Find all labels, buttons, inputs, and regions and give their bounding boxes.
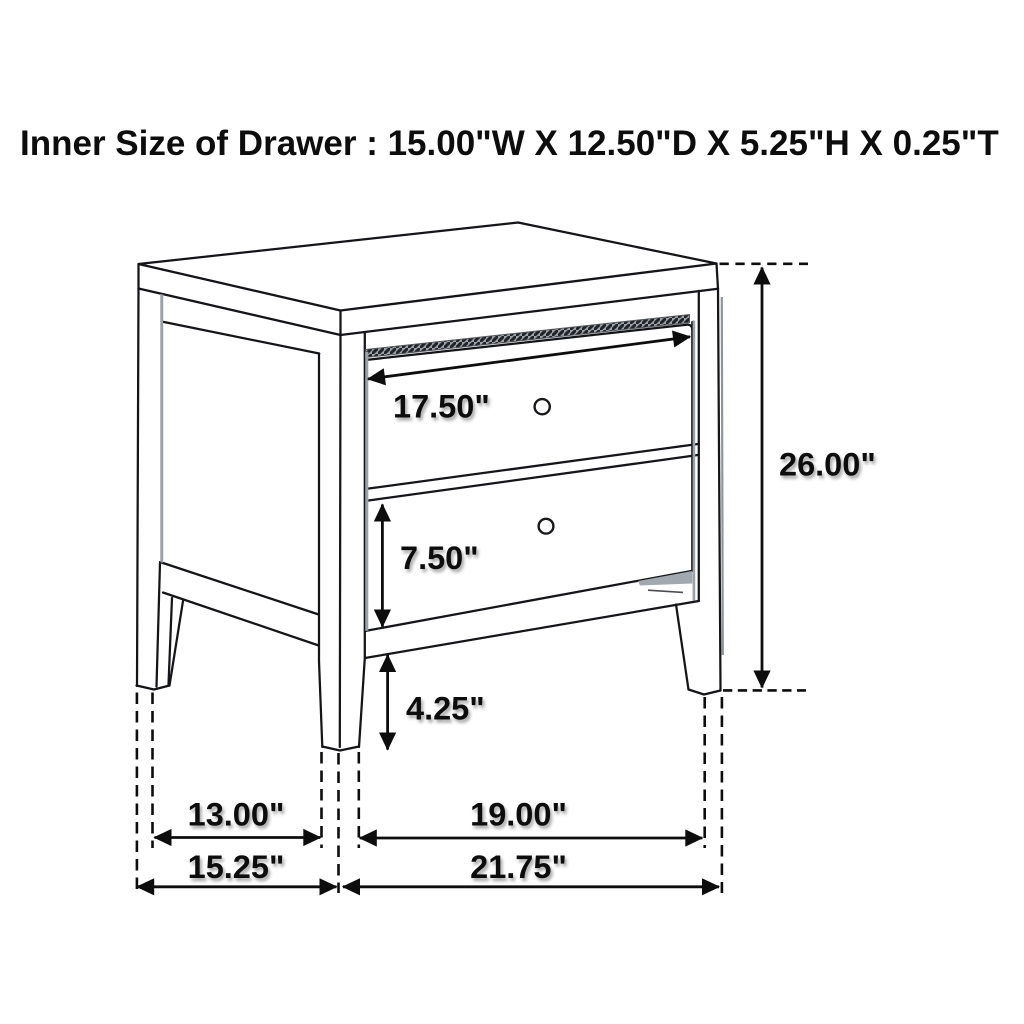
svg-text:19.00": 19.00" — [470, 797, 567, 833]
svg-text:Inner Size of Drawer : 15.00"W: Inner Size of Drawer : 15.00"W X 12.50"D… — [20, 124, 999, 163]
svg-text:26.00": 26.00" — [779, 447, 876, 483]
svg-text:4.25": 4.25" — [406, 691, 485, 727]
svg-text:7.50": 7.50" — [400, 540, 479, 576]
svg-text:21.75": 21.75" — [470, 849, 567, 885]
svg-text:13.00": 13.00" — [188, 797, 285, 833]
svg-text:17.50": 17.50" — [393, 389, 490, 425]
svg-text:15.25": 15.25" — [188, 849, 285, 885]
